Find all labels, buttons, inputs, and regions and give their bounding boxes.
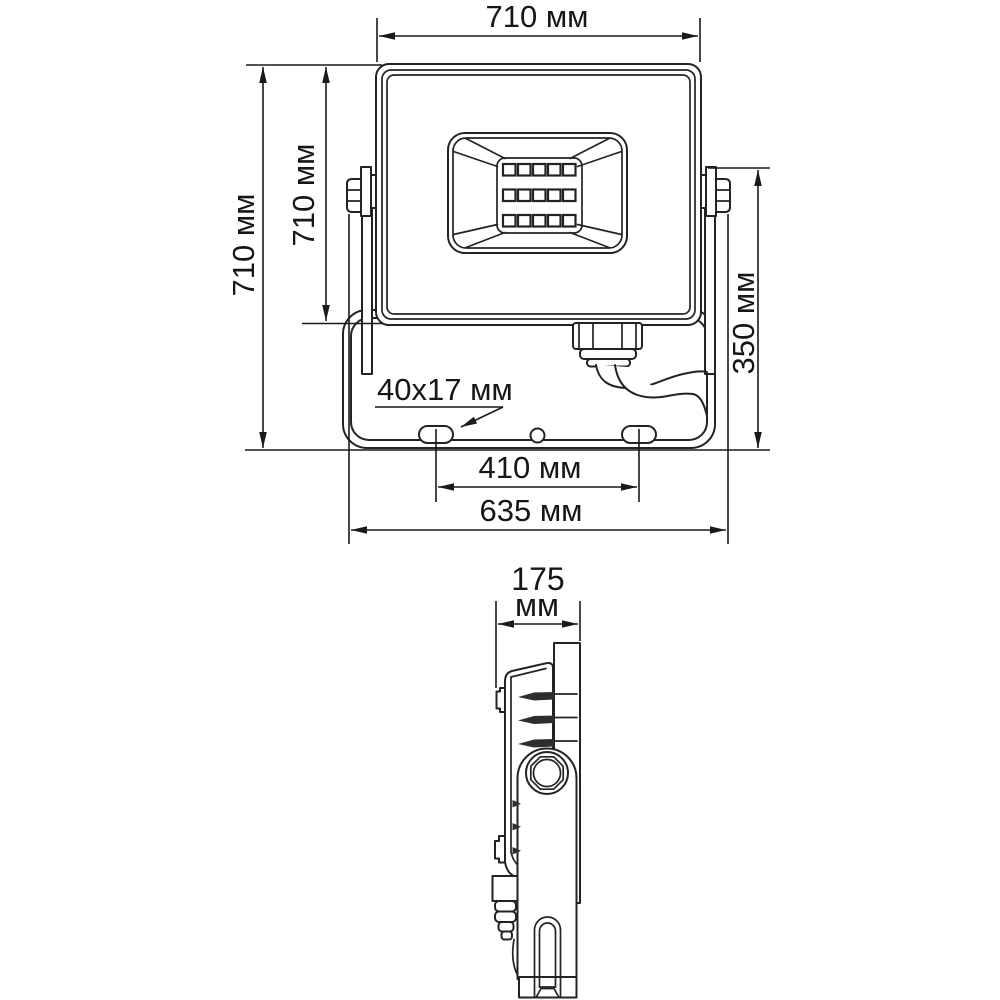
dim-label-bracket-width: 635 мм <box>480 493 583 528</box>
side-view: 175 мм <box>493 561 581 998</box>
side-gland-ring <box>499 922 514 932</box>
led-chip <box>533 215 546 227</box>
drawing-canvas: 710 мм 710 мм 710 мм 350 мм 40x17 мм <box>0 0 1000 1000</box>
led-chip <box>518 215 531 227</box>
dim-label-depth-unit: мм <box>515 587 559 623</box>
led-chip <box>518 190 531 202</box>
led-chip <box>563 190 576 202</box>
side-cable-gland <box>493 876 519 977</box>
dim-label-slot-spacing: 410 мм <box>479 450 582 485</box>
gland-collar <box>580 349 636 359</box>
led-chip <box>533 164 546 176</box>
dimension-width-top: 710 мм <box>377 0 700 62</box>
led-window <box>448 133 627 253</box>
side-gland-ring <box>495 901 516 912</box>
mounting-hole-center <box>531 429 545 443</box>
front-view: 710 мм 710 мм 710 мм 350 мм 40x17 мм <box>226 0 770 544</box>
washer-left <box>361 167 371 216</box>
hex-bolt-left <box>347 179 361 212</box>
led-chip <box>548 190 561 202</box>
side-gland-tip <box>502 932 513 940</box>
led-chip <box>503 215 516 227</box>
slot-size-label: 40x17 мм <box>377 372 513 407</box>
pivot-bolt-outer-circle <box>526 752 568 794</box>
side-bolt-tab-upper-outline <box>497 688 506 712</box>
hex-bolt-right <box>716 179 730 212</box>
bracket-arm-left <box>362 205 372 374</box>
side-bolt-tab-lower <box>495 836 505 863</box>
led-chip <box>563 215 576 227</box>
side-bolt-tab-upper <box>497 688 506 712</box>
led-chip <box>503 190 516 202</box>
led-chip-grid <box>503 164 576 227</box>
side-bolt-tab-lower-outline <box>495 836 505 863</box>
led-chip <box>548 164 561 176</box>
led-chip <box>563 164 576 176</box>
dim-label-height-bracket: 350 мм <box>726 272 761 375</box>
led-chip <box>503 164 516 176</box>
led-chip <box>518 164 531 176</box>
gland-ring <box>587 359 630 367</box>
led-chip <box>533 190 546 202</box>
led-chip <box>548 215 561 227</box>
pivot-bolt <box>526 752 568 794</box>
floodlight-technical-drawing: 710 мм 710 мм 710 мм 350 мм 40x17 мм <box>0 0 1000 1000</box>
dim-label-height-overall: 710 мм <box>226 194 261 297</box>
side-gland-ring <box>495 912 516 923</box>
side-gland-box <box>493 876 518 901</box>
dim-label-height-body: 710 мм <box>286 144 321 247</box>
bracket-arm-right <box>705 205 715 374</box>
dim-label-width-top: 710 мм <box>486 0 589 34</box>
washer-right <box>706 167 716 216</box>
gland-nut <box>573 323 642 349</box>
